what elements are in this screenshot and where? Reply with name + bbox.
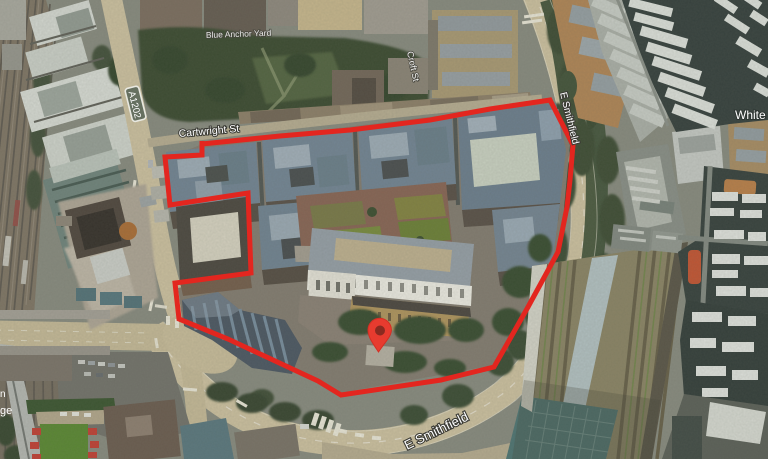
svg-text:n: n — [0, 389, 6, 400]
svg-text:ge: ge — [0, 405, 12, 417]
svg-text:White: White — [735, 108, 766, 122]
